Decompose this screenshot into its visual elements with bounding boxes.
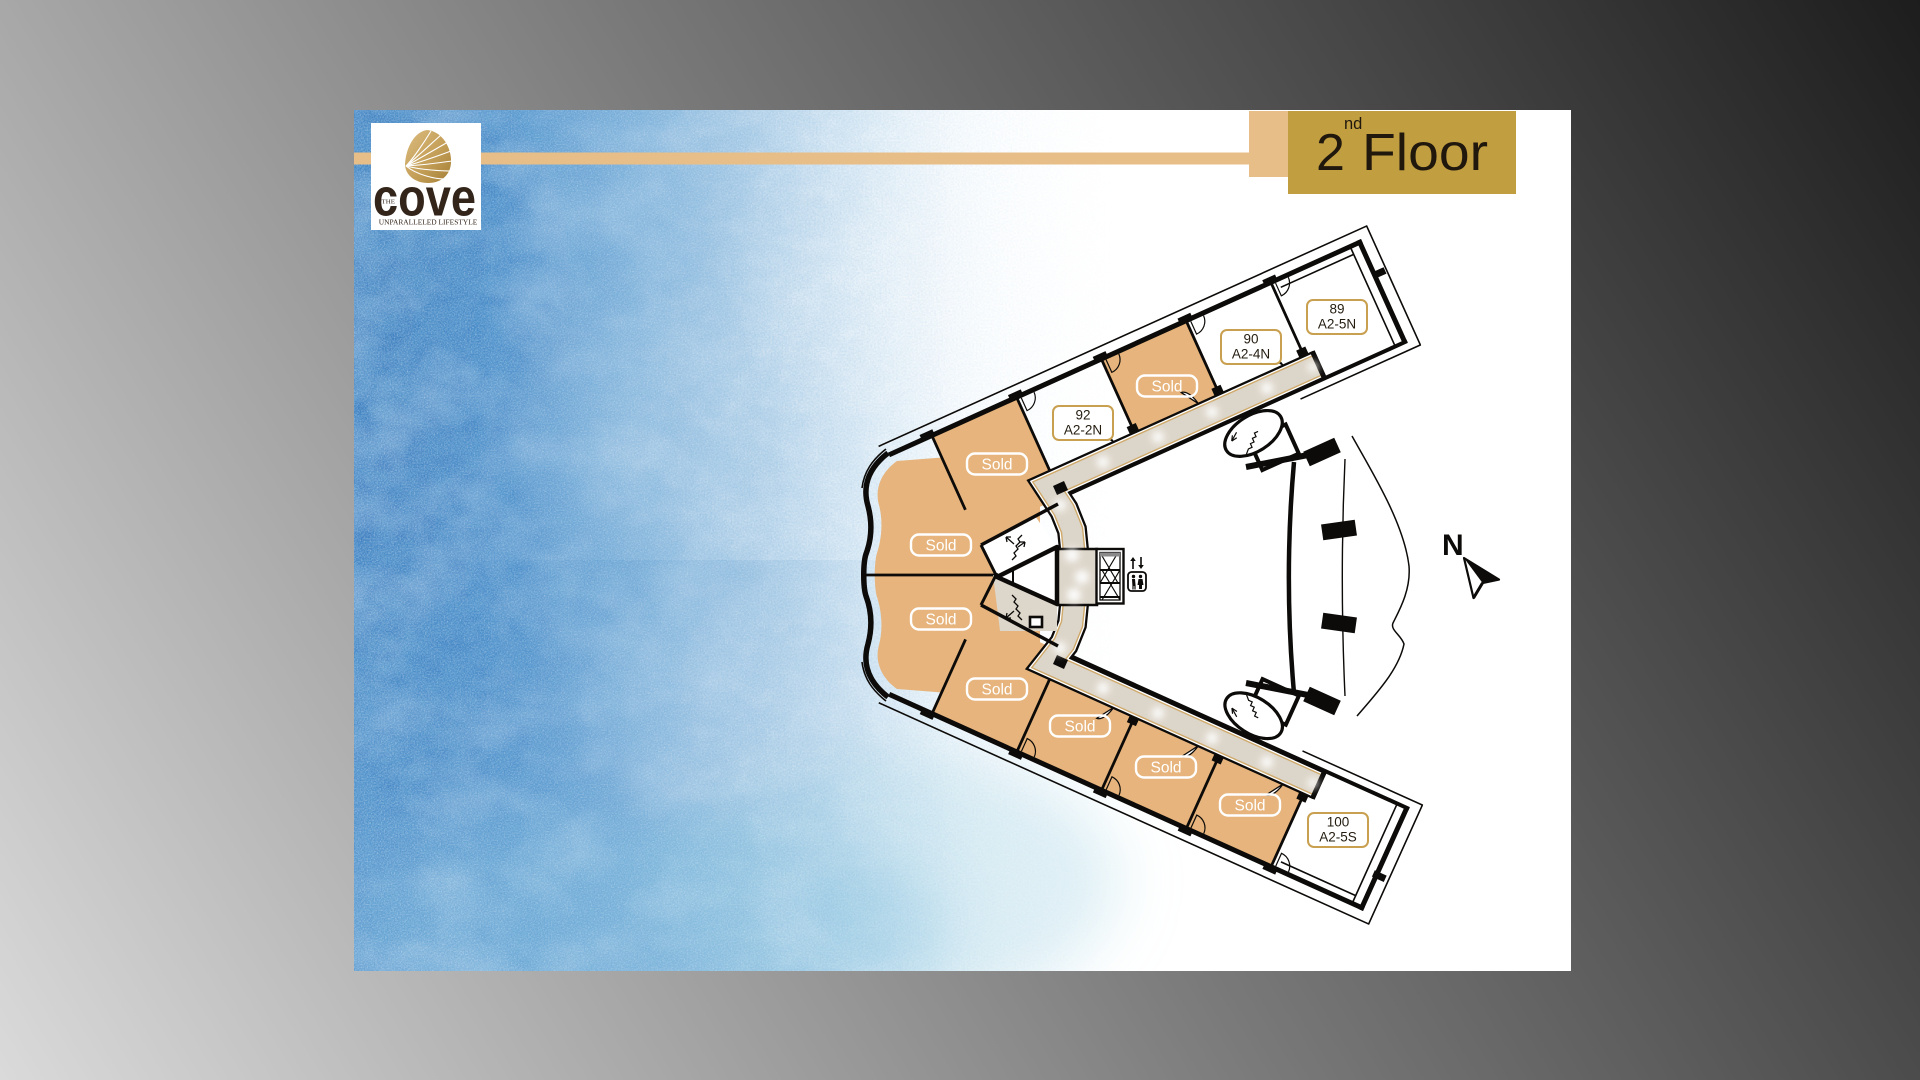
svg-text:Sold: Sold	[1151, 379, 1182, 396]
svg-text:Floor: Floor	[1362, 124, 1488, 182]
svg-text:A2-5N: A2-5N	[1318, 317, 1356, 332]
svg-text:90: 90	[1243, 332, 1258, 347]
svg-text:N: N	[1442, 529, 1464, 562]
svg-text:Sold: Sold	[925, 538, 956, 555]
svg-text:Sold: Sold	[1064, 719, 1095, 736]
svg-text:Sold: Sold	[1150, 760, 1181, 777]
svg-text:Sold: Sold	[981, 457, 1012, 474]
svg-text:A2-5S: A2-5S	[1319, 830, 1357, 845]
svg-text:Sold: Sold	[925, 612, 956, 629]
svg-text:89: 89	[1329, 302, 1344, 317]
svg-text:92: 92	[1075, 408, 1090, 423]
svg-text:2: 2	[1316, 124, 1345, 182]
svg-text:nd: nd	[1344, 115, 1362, 133]
svg-text:THE: THE	[382, 199, 396, 206]
svg-text:Sold: Sold	[1234, 798, 1265, 815]
svg-text:100: 100	[1327, 815, 1350, 830]
svg-text:Sold: Sold	[981, 682, 1012, 699]
svg-text:UNPARALLELED LIFESTYLE: UNPARALLELED LIFESTYLE	[379, 219, 478, 226]
svg-text:A2-2N: A2-2N	[1064, 423, 1102, 438]
svg-text:A2-4N: A2-4N	[1232, 347, 1270, 362]
